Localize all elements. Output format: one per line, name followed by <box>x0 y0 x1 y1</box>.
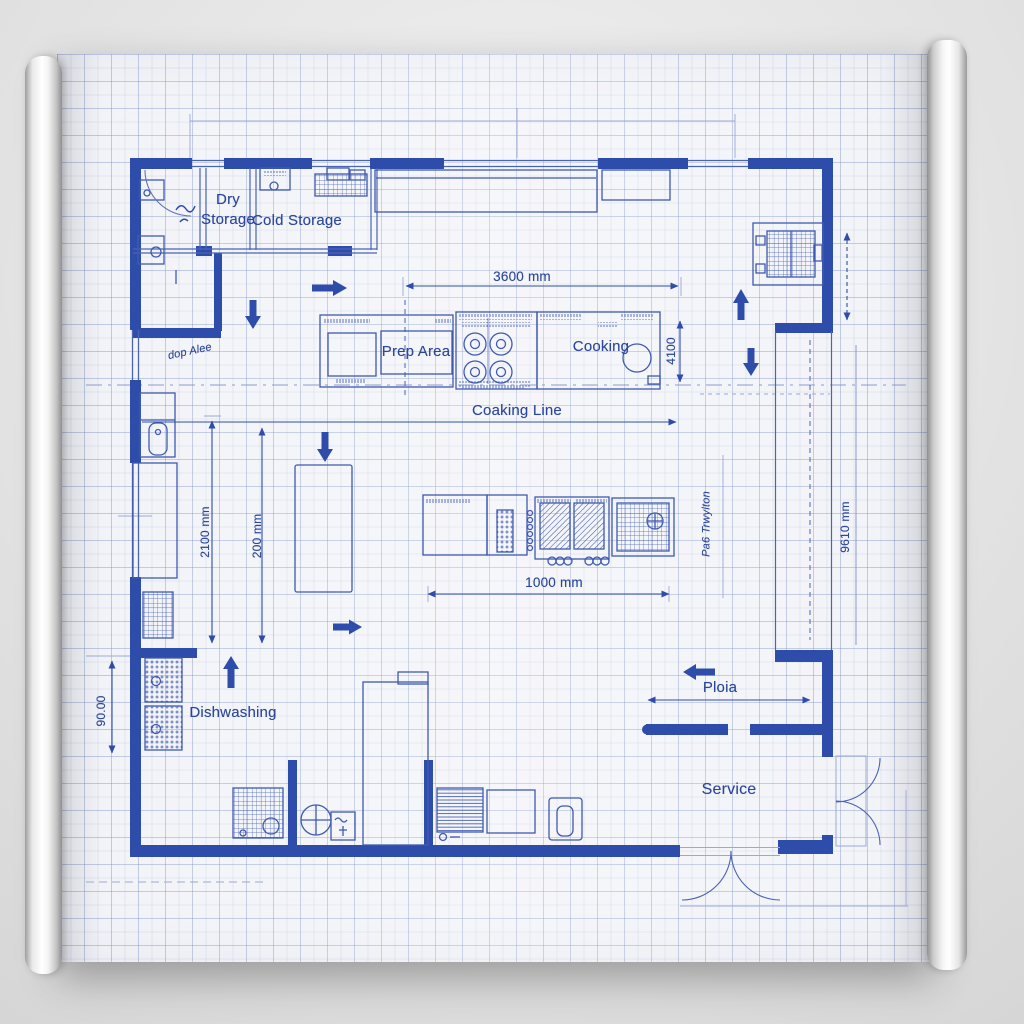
paper-roll-right <box>927 40 967 970</box>
scene: Dry Storage Cold Storage Prep Area Cooki… <box>0 0 1024 1024</box>
paper-roll-left <box>25 56 62 974</box>
paper-sheen <box>57 54 934 962</box>
blueprint-paper <box>57 54 934 962</box>
